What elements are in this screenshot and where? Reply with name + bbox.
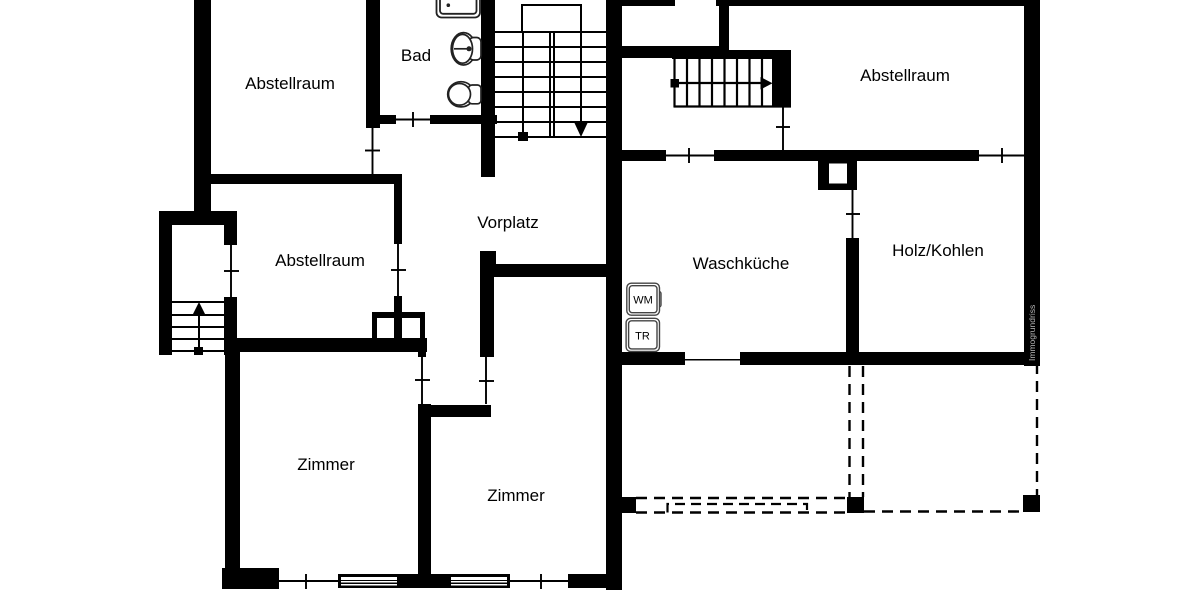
svg-text:WM: WM: [633, 295, 653, 307]
svg-text:Bad: Bad: [401, 46, 431, 65]
svg-text:Vorplatz: Vorplatz: [477, 213, 538, 232]
svg-text:Abstellraum: Abstellraum: [275, 251, 365, 270]
svg-text:Waschküche: Waschküche: [693, 254, 790, 273]
svg-text:Zimmer: Zimmer: [297, 455, 355, 474]
svg-text:Immogrundriss: Immogrundriss: [1027, 305, 1037, 361]
svg-text:TR: TR: [635, 331, 650, 343]
svg-text:Abstellraum: Abstellraum: [245, 74, 335, 93]
svg-text:Abstellraum: Abstellraum: [860, 66, 950, 85]
svg-text:Holz/Kohlen: Holz/Kohlen: [892, 241, 984, 260]
svg-text:Zimmer: Zimmer: [487, 486, 545, 505]
